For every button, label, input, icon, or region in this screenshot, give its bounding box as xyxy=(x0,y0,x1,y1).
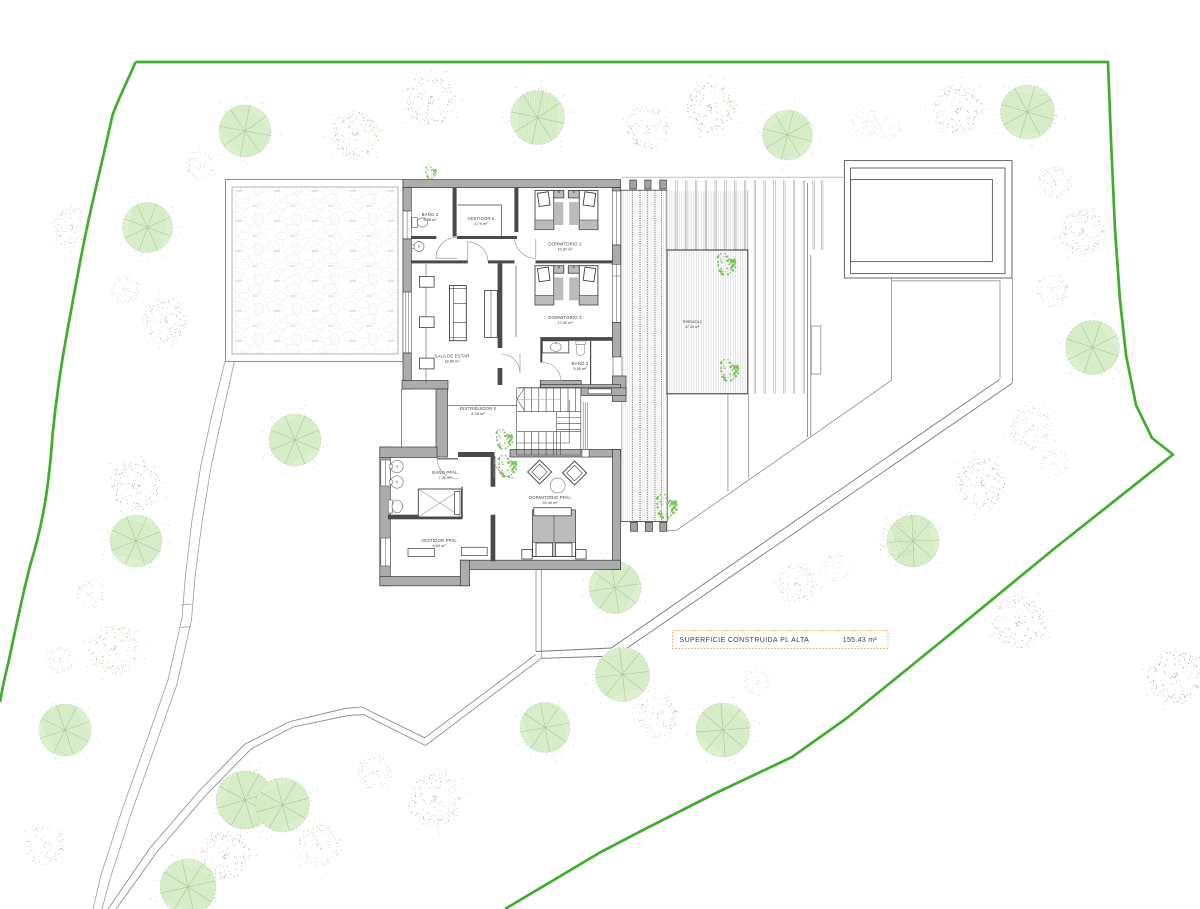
svg-text:155.43 m²: 155.43 m² xyxy=(843,637,878,644)
svg-text:16.87 m²: 16.87 m² xyxy=(557,247,573,252)
svg-text:9.64 m²: 9.64 m² xyxy=(432,543,446,548)
svg-text:TERRAZA 2: TERRAZA 2 xyxy=(682,320,702,324)
svg-text:24.90 m²: 24.90 m² xyxy=(542,500,558,505)
svg-text:17.90 m²: 17.90 m² xyxy=(557,320,573,325)
svg-text:SUPERFICIE CONSTRUIDA PL ALTA: SUPERFICIE CONSTRUIDA PL ALTA xyxy=(680,637,810,644)
svg-text:7.39 m²: 7.39 m² xyxy=(438,475,452,480)
svg-text:18.80 m²: 18.80 m² xyxy=(444,359,460,364)
svg-text:5.55 m²: 5.55 m² xyxy=(573,366,587,371)
svg-text:47.43 m²: 47.43 m² xyxy=(685,325,700,329)
svg-text:4.79 m²: 4.79 m² xyxy=(474,221,488,226)
svg-text:8.34 m²: 8.34 m² xyxy=(471,411,485,416)
svg-text:5.38 m²: 5.38 m² xyxy=(423,217,437,222)
